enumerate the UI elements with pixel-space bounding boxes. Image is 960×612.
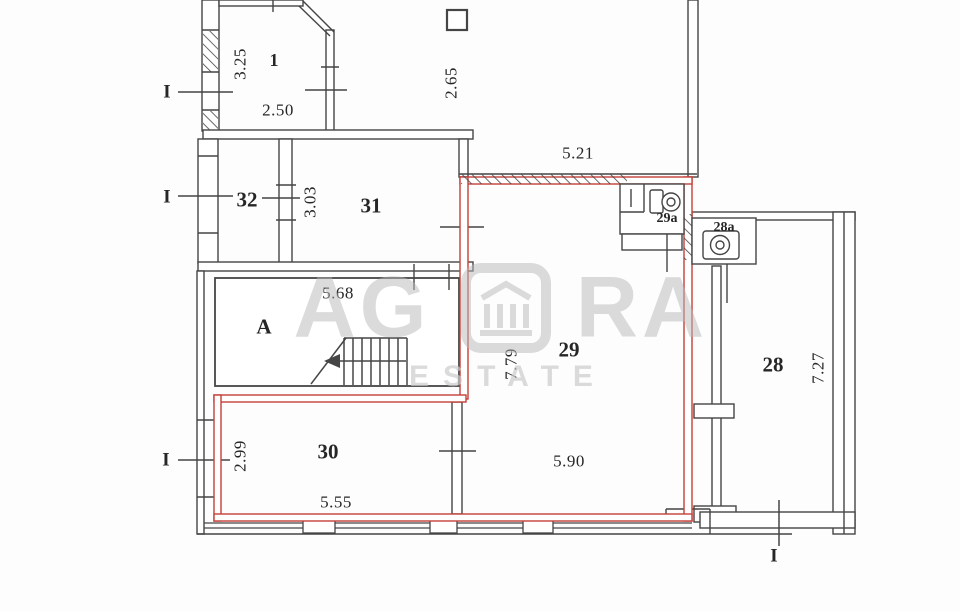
walls bbox=[197, 0, 855, 534]
dimension-3-25: 3.25 bbox=[232, 48, 249, 80]
dimension-2-50: 2.50 bbox=[262, 102, 294, 119]
room-label-31: 31 bbox=[361, 196, 382, 217]
dimension-3-03: 3.03 bbox=[302, 186, 319, 218]
section-marker-1: I bbox=[163, 83, 170, 102]
room-label-30: 30 bbox=[318, 442, 339, 463]
room-label-28: 28 bbox=[763, 355, 784, 376]
dimension-5-68: 5.68 bbox=[322, 285, 354, 302]
dimension-5-21: 5.21 bbox=[562, 145, 594, 162]
section-marker-4: I bbox=[770, 547, 777, 566]
section-marker-2: I bbox=[163, 188, 170, 207]
section-marker-3: I bbox=[162, 451, 169, 470]
room-label-1: 1 bbox=[270, 51, 279, 69]
room-label-A: A bbox=[256, 317, 271, 338]
room-label-29: 29 bbox=[559, 340, 580, 361]
dimension-2-65: 2.65 bbox=[443, 67, 460, 99]
window-piers bbox=[303, 520, 553, 533]
dimension-5-55: 5.55 bbox=[320, 494, 352, 511]
sink-icon bbox=[703, 231, 739, 259]
floorplan-linework bbox=[0, 0, 960, 612]
floorplan: 1 32 31 A 29a 28a 29 28 30 3.25 2.50 2.6… bbox=[0, 0, 960, 612]
room-label-29a: 29a bbox=[657, 212, 678, 226]
dimension-2-99: 2.99 bbox=[232, 440, 249, 472]
room-label-32: 32 bbox=[237, 190, 258, 211]
room-label-28a: 28a bbox=[714, 221, 735, 235]
dimension-7-79: 7.79 bbox=[503, 348, 520, 380]
column-symbol bbox=[447, 10, 467, 30]
dimension-7-27: 7.27 bbox=[810, 352, 827, 384]
dimension-5-90: 5.90 bbox=[553, 453, 585, 470]
